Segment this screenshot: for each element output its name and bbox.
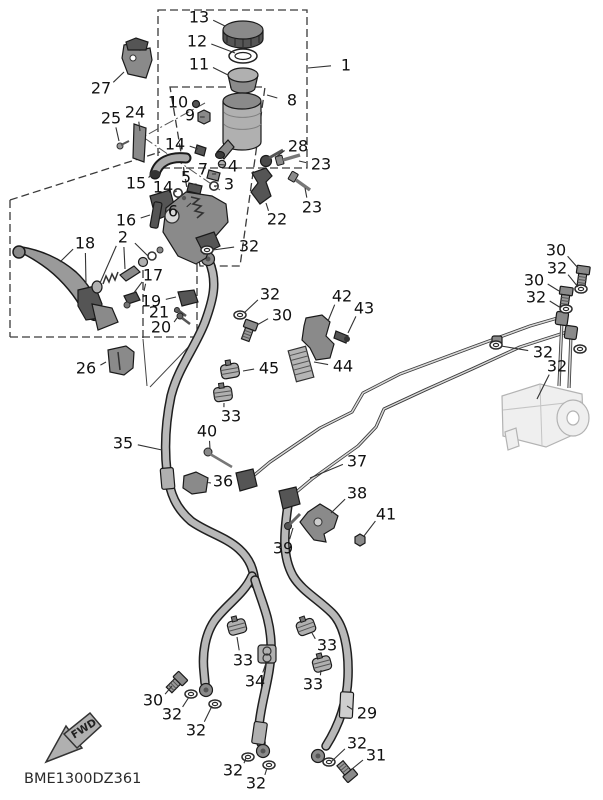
leader-line-33 [312,633,315,639]
leader-line-40 [210,441,211,449]
part-32-washer [201,246,213,254]
part-25-screw [117,141,129,149]
part-label-14[interactable]: 14 [165,135,185,154]
leader-line-2 [135,243,148,256]
part-label-44[interactable]: 44 [333,357,353,376]
part-label-28[interactable]: 28 [288,137,308,156]
part-label-35[interactable]: 35 [113,434,133,453]
part-label-33[interactable]: 33 [221,407,241,426]
part-label-5[interactable]: 5 [181,168,191,187]
part-41-nut [355,534,365,546]
part-40-bolt [204,448,232,467]
leader-line-20 [174,318,177,322]
part-label-32[interactable]: 32 [260,285,280,304]
leader-line-38 [331,499,345,513]
abs-hydraulic-unit [502,384,589,450]
part-label-2[interactable]: 2 [118,228,128,247]
part-label-20[interactable]: 20 [151,318,171,337]
leader-line-18 [60,249,73,262]
part-32-washer [560,305,572,313]
diagram-code: BME1300DZ361 [24,771,141,787]
leader-line-30 [257,319,268,325]
part-label-24[interactable]: 24 [125,103,145,122]
leader-line-14 [175,191,177,192]
part-label-33[interactable]: 33 [233,651,253,670]
part-30-union-bolt [239,319,258,342]
leader-line-17 [144,284,146,291]
part-label-41[interactable]: 41 [376,505,396,524]
part-label-30[interactable]: 30 [143,691,163,710]
leader-line-33 [237,637,239,650]
part-45-clamp [219,359,240,380]
part-label-1[interactable]: 1 [341,56,351,75]
leader-line-39 [290,528,293,539]
part-36-holder [183,472,208,494]
leader-line-32 [244,300,258,313]
leader-line-32 [183,697,189,707]
part-label-6[interactable]: 6 [168,202,178,221]
part-11-diaphragm [228,68,258,93]
part-label-30[interactable]: 30 [272,306,292,325]
leader-line-32 [550,301,561,308]
part-32-washer [263,761,275,769]
part-16-pin [150,202,162,229]
part-label-36[interactable]: 36 [213,472,233,491]
part-label-32[interactable]: 32 [162,705,182,724]
part-label-31[interactable]: 31 [366,746,386,765]
part-label-32[interactable]: 32 [347,734,367,753]
leader-line-27 [113,72,124,82]
leader-line-44 [314,362,328,365]
leader-line-32 [204,706,212,722]
leader-line-23 [299,161,306,163]
hose-joint [279,487,300,509]
part-label-43[interactable]: 43 [354,299,374,318]
leader-line-30 [548,284,559,291]
part-label-40[interactable]: 40 [197,422,217,441]
leader-line-45 [243,369,254,371]
parts-diagram-canvas: FWD BME1300DZ361 13121112781024925142823… [0,0,603,800]
leader-line-42 [328,305,335,321]
parts-diagram-page: FWD BME1300DZ361 13121112781024925142823… [0,0,603,800]
part-label-32[interactable]: 32 [246,774,266,793]
part-33-clamp [294,614,317,637]
hose-sleeve [252,721,268,745]
leader-line-8 [267,95,277,98]
hose-joint [236,469,257,491]
part-label-29[interactable]: 29 [357,704,377,723]
part-label-42[interactable]: 42 [332,287,352,306]
part-label-23[interactable]: 23 [302,198,322,217]
leader-line-18 [85,253,86,284]
part-label-38[interactable]: 38 [347,484,367,503]
part-label-32[interactable]: 32 [223,761,243,780]
part-label-32[interactable]: 32 [547,357,567,376]
part-label-15[interactable]: 15 [126,174,146,193]
part-26-clamp [108,346,134,375]
part-32-washer [209,700,221,708]
part-12-diaphragm-plate [229,49,257,63]
leader-line-43 [348,316,356,333]
part-label-3[interactable]: 3 [224,175,234,194]
part-33-clamp [213,382,233,402]
part-4-ball [218,160,225,167]
part-label-32[interactable]: 32 [526,288,546,307]
part-33-clamp [225,614,247,636]
leader-line-13 [213,20,225,26]
part-30-union-bolt [575,265,591,287]
part-label-39[interactable]: 39 [273,539,293,558]
hose-sleeve [160,467,175,489]
leader-line-41 [364,521,375,536]
leader-line-37 [310,464,343,478]
leader-line-2 [124,247,125,269]
part-7-piece [207,170,220,181]
pipe-fitting [564,325,578,340]
leader-line-25 [116,127,119,141]
fwd-arrow: FWD [46,713,101,762]
part-13-reservoir-cap [223,21,263,48]
part-label-9[interactable]: 9 [185,106,195,125]
part-label-37[interactable]: 37 [347,452,367,471]
part-label-27[interactable]: 27 [91,79,111,98]
part-label-4[interactable]: 4 [228,157,238,176]
part-label-30[interactable]: 30 [546,241,566,260]
part-label-14[interactable]: 14 [153,178,173,197]
part-label-32[interactable]: 32 [547,259,567,278]
part-32-washer [185,690,197,698]
part-22-stay-bracket [251,168,272,204]
part-32-washer [490,341,502,349]
part-32-washer [574,345,586,353]
part-8-reservoir [216,93,262,159]
part-38-bracket [300,504,338,542]
part-23-bolt [288,171,310,190]
leader-line-32 [331,749,345,762]
leader-line-11 [213,68,228,76]
part-label-32[interactable]: 32 [186,721,206,740]
part-label-7[interactable]: 7 [198,160,208,179]
leader-line-26 [100,362,106,365]
part-31-union-bolt [335,759,358,783]
part-23-bolt [275,155,300,166]
part-14-damper [195,145,206,156]
part-27-bracket [122,38,152,78]
part-34-clamp [258,645,276,663]
hose-sleeve [339,692,353,719]
part-label-17[interactable]: 17 [143,266,163,285]
leader-line-1 [308,66,331,68]
part-label-11[interactable]: 11 [189,55,209,74]
part-label-22[interactable]: 22 [267,210,287,229]
part-17-pieces [124,292,140,308]
part-label-33[interactable]: 33 [303,675,323,694]
part-label-8[interactable]: 8 [287,91,297,110]
part-label-26[interactable]: 26 [76,359,96,378]
part-label-12[interactable]: 12 [187,32,207,51]
leader-line-31 [352,760,363,769]
leader-line-32 [568,275,578,287]
part-label-25[interactable]: 25 [101,109,121,128]
leader-line-16 [141,215,150,218]
leader-line-30 [568,256,578,268]
part-label-34[interactable]: 34 [245,672,265,691]
part-label-45[interactable]: 45 [259,359,279,378]
part-label-13[interactable]: 13 [189,8,209,27]
part-label-32[interactable]: 32 [239,237,259,256]
part-label-18[interactable]: 18 [75,234,95,253]
leader-line-35 [138,445,162,450]
part-label-23[interactable]: 23 [311,155,331,174]
part-32-washer [242,753,254,761]
part-44-damper [288,346,314,382]
part-label-33[interactable]: 33 [317,636,337,655]
leader-line-19 [166,297,176,299]
part-19-switch [178,290,198,306]
